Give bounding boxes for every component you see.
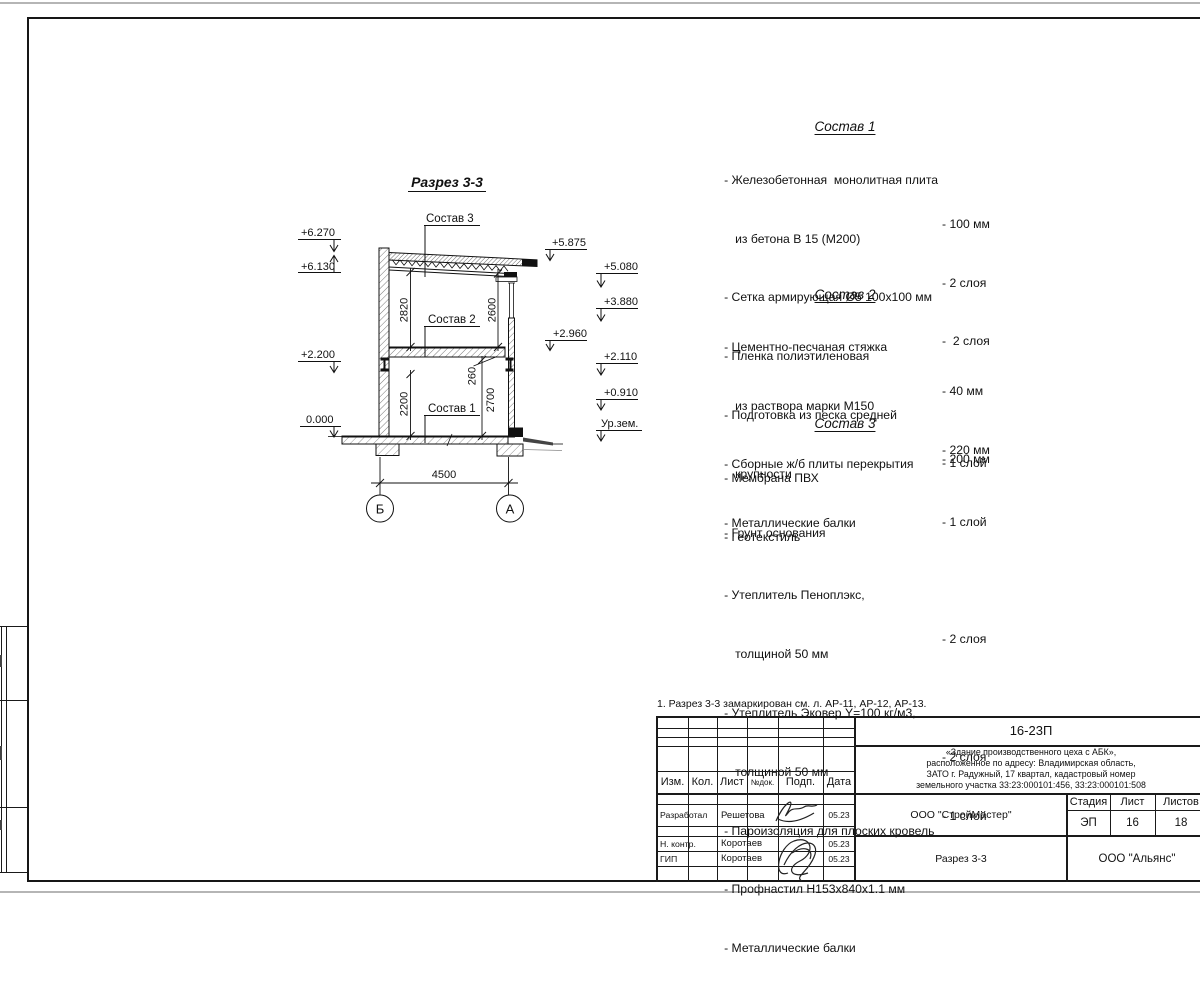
axis-letter-left: Б (376, 502, 385, 517)
layer-row: толщиной 50 мм - 2 слоя (697, 632, 993, 691)
callout-sostav3: Состав 3 (426, 213, 474, 225)
layer-value: - 1 слой (942, 456, 987, 471)
col-header-izm: Изм. (657, 771, 688, 793)
dim-text: 260 (467, 367, 479, 385)
elevation-label: +2.110 (604, 351, 637, 363)
layer-value: - 100 мм (942, 217, 990, 232)
roof-end-block (522, 259, 537, 267)
layer-row: - Утеплитель Пеноплэкс, (697, 574, 993, 633)
dim-text: 4500 (432, 469, 456, 481)
stage-label: Стадия (1067, 793, 1110, 810)
axis-bubbles: Б А (367, 495, 524, 522)
section-title: Разрез 3-3 (408, 174, 486, 192)
dim-2820: 2820 (399, 268, 415, 351)
layer-callouts: Состав 3 Состав 2 Состав 1 (424, 213, 480, 443)
row-name: Решетова (718, 804, 776, 826)
cut-text-fragment (0, 820, 2, 830)
dim-text: 2820 (399, 298, 411, 322)
blind-area (523, 438, 553, 446)
elevation-mark-ground: Ур.зем. (596, 418, 642, 441)
layer-value: - 40 мм (942, 384, 983, 399)
col-header-ndok: №док. (747, 771, 778, 793)
layer-text: - Геотекстиль (724, 530, 800, 544)
left-wall (379, 248, 389, 437)
elevation-mark: +2.110 (596, 351, 638, 375)
customer-name: ООО "Альянс" (1067, 836, 1200, 882)
layer-value: - 1 слой (942, 515, 987, 530)
cornice-step (496, 277, 517, 282)
section-drawing: Разрез 3-3 (280, 165, 670, 535)
cut-text-fragment (0, 655, 2, 667)
row-name: Коротаев (718, 851, 776, 866)
col-header-podp: Подп. (778, 771, 823, 793)
dim-text: 2700 (485, 388, 497, 412)
elevation-mark: +2.200 (298, 349, 341, 373)
signature-razrabotal (776, 802, 817, 821)
elevation-mark: +2.960 (545, 328, 587, 351)
project-line: земельного участка 33:23:000101:456, 33:… (916, 780, 1146, 791)
cut-text-fragment (0, 746, 2, 760)
layer-text: - Металлические балки (724, 941, 856, 955)
elevation-label: +2.200 (301, 349, 335, 361)
doc-number: 16-23П (855, 716, 1200, 745)
stage-value: ЭП (1067, 810, 1110, 836)
layer-row: из бетона В 15 (М200) - 100 мм (697, 217, 993, 276)
layer-text: - Железобетонная монолитная плита (724, 173, 938, 187)
foundation-left (376, 444, 399, 456)
dim-text: 2200 (399, 392, 411, 416)
project-line: ЗАТО г. Радужный, 17 квартал, кадастровы… (927, 769, 1136, 780)
layer-row: - Цементно-песчаная стяжка (697, 325, 993, 384)
elevation-mark: +3.880 (596, 296, 638, 321)
sostav-2-title: Состав 2 (697, 287, 993, 302)
layer-text: из раствора марки М150 (735, 399, 874, 413)
sostav-1-title: Состав 1 (697, 119, 993, 134)
elevation-label: +6.130 (301, 261, 335, 273)
sheet-label: Лист (1110, 793, 1155, 810)
ground-level-label: Ур.зем. (601, 418, 638, 430)
roof-beam (504, 272, 517, 277)
project-line: расположенное по адресу: Владимирская об… (926, 758, 1135, 769)
col-header-list: Лист (717, 771, 747, 793)
dim-4500: 4500 (371, 457, 518, 495)
elevation-mark: +6.130 (298, 256, 341, 274)
row-name: Коротаев (718, 836, 776, 851)
dim-2700: 2700 (478, 356, 497, 440)
sheet-value: 16 (1110, 810, 1155, 836)
row-role: ГИП (657, 851, 717, 866)
elevation-label: 0.000 (306, 414, 334, 426)
layer-value: - 2 слоя (942, 632, 986, 647)
col-header-kol: Кол. (688, 771, 717, 793)
sheets-value: 18 (1155, 810, 1200, 836)
layer-text: - Мембрана ПВХ (724, 471, 819, 485)
elevation-mark: +0.910 (596, 387, 638, 410)
dim-text: 2600 (487, 298, 499, 322)
elevation-label: +0.910 (604, 387, 638, 399)
elevation-label: +6.270 (301, 227, 335, 239)
dim-2200: 2200 (399, 370, 415, 440)
elevation-mark: +5.875 (545, 237, 587, 261)
layer-row: - Железобетонная монолитная плита (697, 158, 993, 217)
callout-sostav1: Состав 1 (428, 403, 476, 415)
sheets-label: Листов (1155, 793, 1200, 810)
elevation-mark: +6.270 (298, 227, 341, 252)
sostav-3-title: Состав 3 (697, 416, 993, 431)
layer-text: из бетона В 15 (М200) (735, 232, 860, 246)
layer-row: - Мембрана ПВХ - 1 слой (697, 456, 993, 515)
project-line: «Здание производственного цеха с АБК», (946, 747, 1116, 758)
col-header-data: Дата (823, 771, 855, 793)
layer-text: - Цементно-песчаная стяжка (724, 340, 887, 354)
elevation-label: +3.880 (604, 296, 638, 308)
elevation-mark: 0.000 (300, 414, 341, 437)
paper-top-edge (0, 2, 1200, 4)
signature-nkontr-gip (779, 840, 816, 881)
signatures (770, 795, 840, 885)
axis-letter-right: А (506, 502, 515, 517)
layer-row: - Металлические балки (697, 927, 993, 985)
layer-row: - Геотекстиль - 1 слой (697, 515, 993, 574)
elevation-label: +2.960 (553, 328, 587, 340)
elevation-label: +5.875 (552, 237, 586, 249)
paper-bottom-edge (0, 891, 1200, 893)
layer-text: - Утеплитель Пеноплэкс, (724, 588, 865, 602)
foundation-right (497, 444, 523, 456)
sheet-note: 1. Разрез 3-3 замаркирован см. л. АР-11,… (657, 698, 926, 710)
row-role: Н. контр. (657, 836, 717, 851)
elevation-label: +5.080 (604, 261, 638, 273)
project-description: «Здание производственного цеха с АБК», р… (860, 746, 1200, 792)
section-title-text: Разрез 3-3 (411, 174, 483, 190)
sheet-title: Разрез 3-3 (855, 836, 1067, 882)
building-section (328, 248, 563, 456)
drawing-sheet: { "drawing": { "title": "Разрез 3-3", "l… (0, 0, 1200, 900)
dimensions: 2820 2600 2200 2700 260 4500 (371, 268, 518, 495)
row-role: Разработал (657, 804, 717, 826)
curb (508, 428, 523, 438)
layer-text: толщиной 50 мм (735, 647, 828, 661)
org-name: ООО "СтройМастер" (855, 793, 1067, 836)
right-wall (509, 318, 515, 437)
elevation-mark: +5.080 (596, 261, 638, 287)
callout-sostav2: Состав 2 (428, 314, 476, 326)
